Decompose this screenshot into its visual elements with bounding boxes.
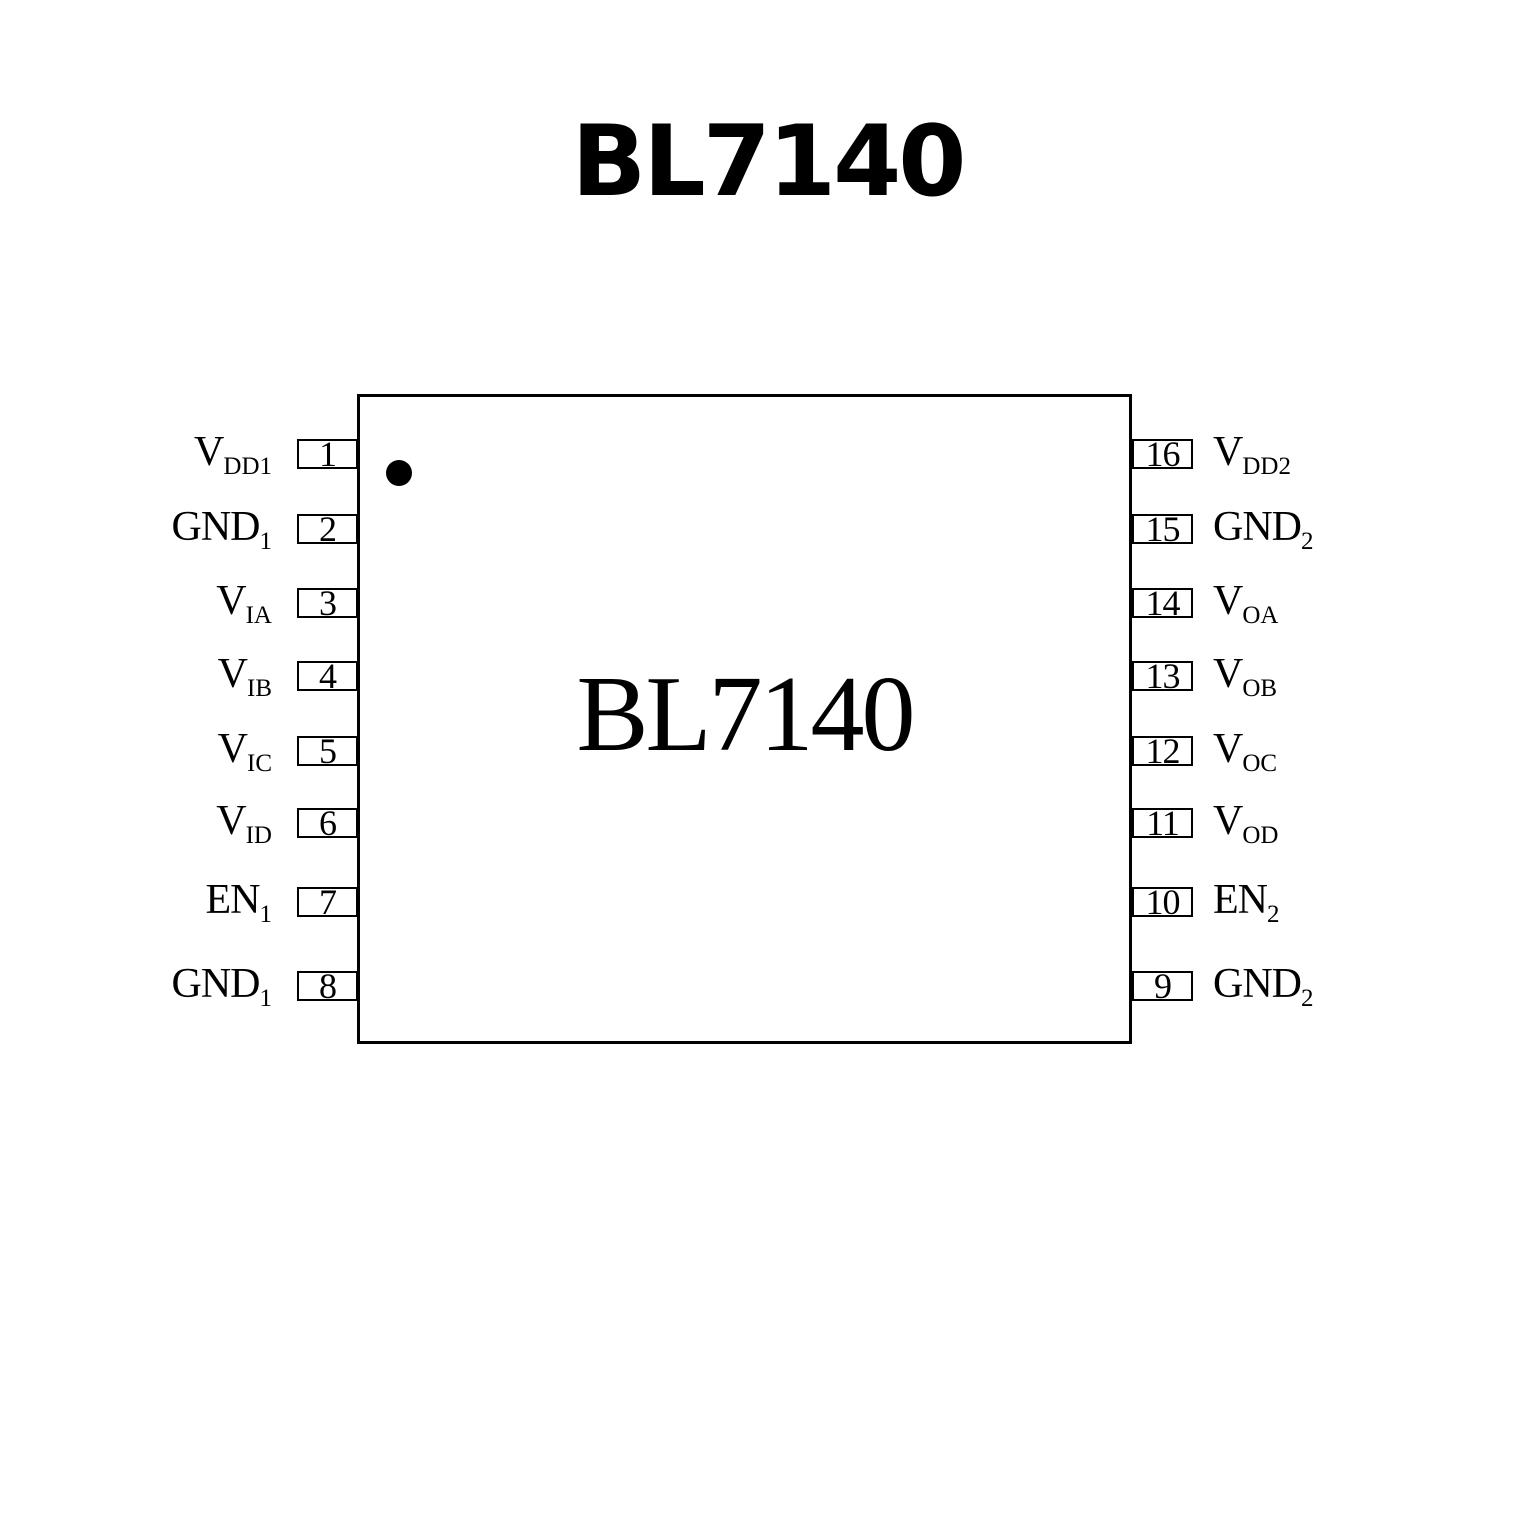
- pin-15-label-name: GND: [1213, 504, 1301, 550]
- pin-16-number: 16: [1146, 439, 1180, 469]
- pin-11-label-name: V: [1213, 798, 1242, 844]
- pin-15-box: 15: [1132, 514, 1193, 544]
- pin-row-10: 10 EN2: [0, 887, 1535, 917]
- pin-9-label-sub: 2: [1301, 985, 1314, 1012]
- pin-row-12: 12 VOC: [0, 736, 1535, 766]
- pin-9-label: GND2: [1213, 962, 1533, 1006]
- pin-9-number: 9: [1154, 971, 1171, 1001]
- pin-row-11: 11 VOD: [0, 808, 1535, 838]
- pinout-diagram-page: BL7140 BL7140 VDD1 1 GND1 2 VIA 3 VIB 4 …: [0, 0, 1535, 1535]
- pin-12-label: VOC: [1213, 727, 1533, 771]
- pin-row-16: 16 VDD2: [0, 439, 1535, 469]
- pin-11-number: 11: [1146, 808, 1179, 838]
- pin-row-14: 14 VOA: [0, 588, 1535, 618]
- pin-11-box: 11: [1132, 808, 1193, 838]
- pin-9-label-name: GND: [1213, 961, 1301, 1007]
- pin-14-label: VOA: [1213, 579, 1533, 623]
- pin-13-label-name: V: [1213, 651, 1242, 697]
- pin-16-box: 16: [1132, 439, 1193, 469]
- pin-11-label: VOD: [1213, 799, 1533, 843]
- pin-9-box: 9: [1132, 971, 1193, 1001]
- page-title: BL7140: [0, 112, 1535, 212]
- pin-row-13: 13 VOB: [0, 661, 1535, 691]
- pin-16-label-name: V: [1213, 429, 1242, 475]
- pin-15-number: 15: [1146, 514, 1180, 544]
- pin-10-number: 10: [1146, 887, 1180, 917]
- pin-14-number: 14: [1146, 588, 1180, 618]
- pin-row-15: 15 GND2: [0, 514, 1535, 544]
- pin-12-label-sub: OC: [1242, 750, 1277, 777]
- pin-13-box: 13: [1132, 661, 1193, 691]
- chip-body: BL7140: [357, 394, 1132, 1044]
- pin-13-label-sub: OB: [1242, 675, 1277, 702]
- pin-13-number: 13: [1146, 661, 1180, 691]
- pin-12-number: 12: [1146, 736, 1180, 766]
- pin-15-label-sub: 2: [1301, 528, 1314, 555]
- pin-10-box: 10: [1132, 887, 1193, 917]
- pin-10-label: EN2: [1213, 878, 1533, 922]
- pin-14-label-name: V: [1213, 578, 1242, 624]
- pin-14-box: 14: [1132, 588, 1193, 618]
- pin-row-9: 9 GND2: [0, 971, 1535, 1001]
- pin-14-label-sub: OA: [1242, 602, 1278, 629]
- pin-16-label-sub: DD2: [1242, 453, 1291, 480]
- pin-12-label-name: V: [1213, 726, 1242, 772]
- pin-11-label-sub: OD: [1242, 822, 1278, 849]
- pin-15-label: GND2: [1213, 505, 1533, 549]
- pin-12-box: 12: [1132, 736, 1193, 766]
- pin-13-label: VOB: [1213, 652, 1533, 696]
- pin-16-label: VDD2: [1213, 430, 1533, 474]
- pin-10-label-name: EN: [1213, 877, 1267, 923]
- pin-10-label-sub: 2: [1267, 901, 1280, 928]
